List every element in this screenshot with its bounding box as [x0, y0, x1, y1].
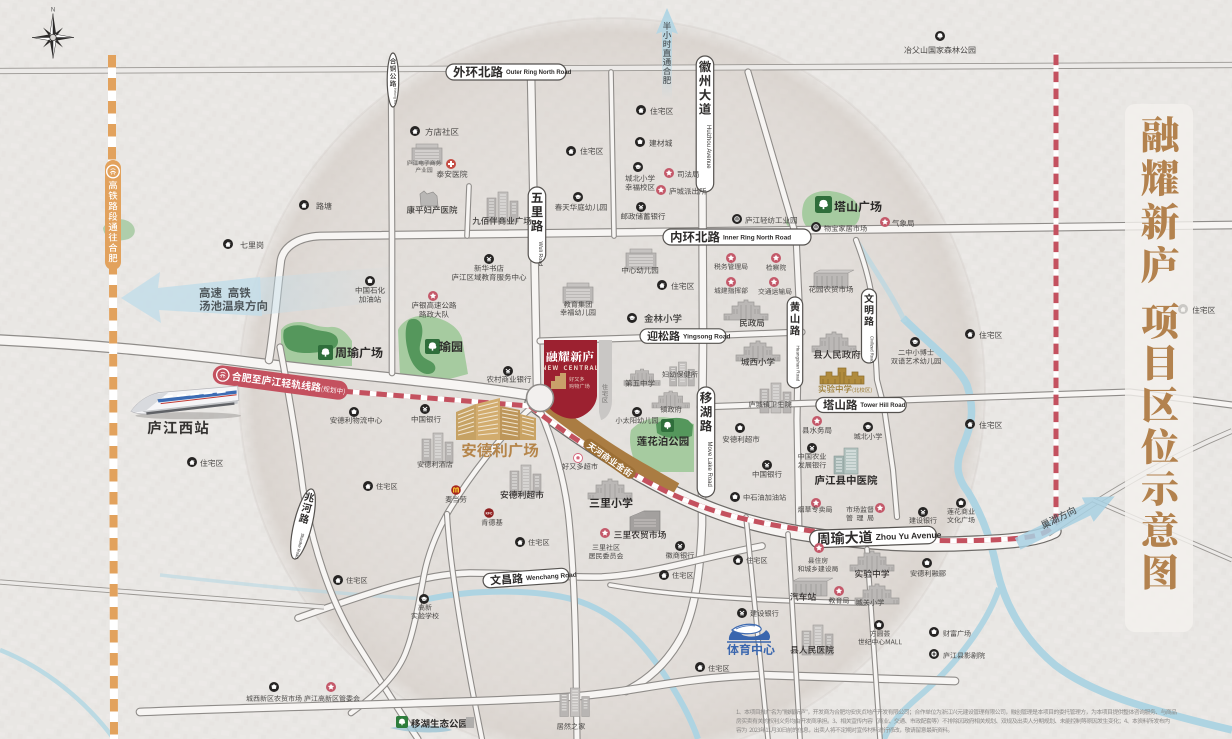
svg-text:Tower Hill Road: Tower Hill Road — [860, 403, 905, 409]
svg-text:N: N — [51, 8, 55, 14]
svg-text:Huizhou Avenue: Huizhou Avenue — [705, 125, 711, 169]
svg-text:Wuli Road: Wuli Road — [537, 242, 543, 267]
svg-text:Hetong Rd: Hetong Rd — [393, 88, 397, 104]
svg-text:Yingsong Road: Yingsong Road — [683, 333, 730, 340]
svg-text:Outer Ring North Road: Outer Ring North Road — [506, 70, 572, 76]
svg-text:Inner Ring North Road: Inner Ring North Road — [723, 234, 791, 241]
svg-text:Move Lake Road: Move Lake Road — [706, 442, 712, 487]
svg-text:Civilized Road: Civilized Road — [870, 336, 875, 363]
svg-text:Huangshan Road: Huangshan Road — [796, 346, 801, 382]
